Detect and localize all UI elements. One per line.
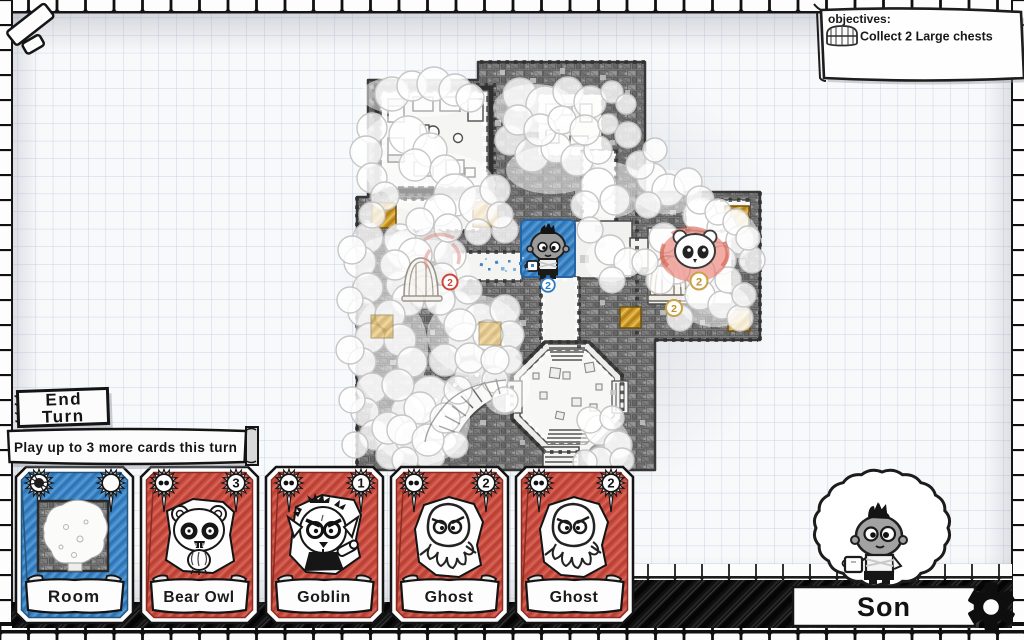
svg-text:2: 2 xyxy=(696,277,702,289)
svg-text:Turn: Turn xyxy=(42,406,85,426)
svg-text:Goblin: Goblin xyxy=(297,589,351,606)
svg-text:objectives:: objectives: xyxy=(828,12,891,26)
svg-text:Play up to 3 more cards this t: Play up to 3 more cards this turn xyxy=(14,440,237,455)
svg-text:Ghost: Ghost xyxy=(550,589,599,606)
svg-text:Room: Room xyxy=(48,587,100,606)
svg-text:3: 3 xyxy=(232,476,239,491)
svg-text:2: 2 xyxy=(607,476,614,491)
svg-text:Bear Owl: Bear Owl xyxy=(163,589,234,606)
svg-text:2: 2 xyxy=(447,278,453,289)
svg-text:Ghost: Ghost xyxy=(425,589,474,606)
svg-text:Collect 2 Large chests: Collect 2 Large chests xyxy=(860,30,993,44)
svg-text:2: 2 xyxy=(671,303,677,315)
svg-text:1: 1 xyxy=(357,476,364,491)
svg-text:2: 2 xyxy=(482,476,489,491)
svg-text:Son: Son xyxy=(857,592,911,622)
svg-text:2: 2 xyxy=(545,280,551,292)
